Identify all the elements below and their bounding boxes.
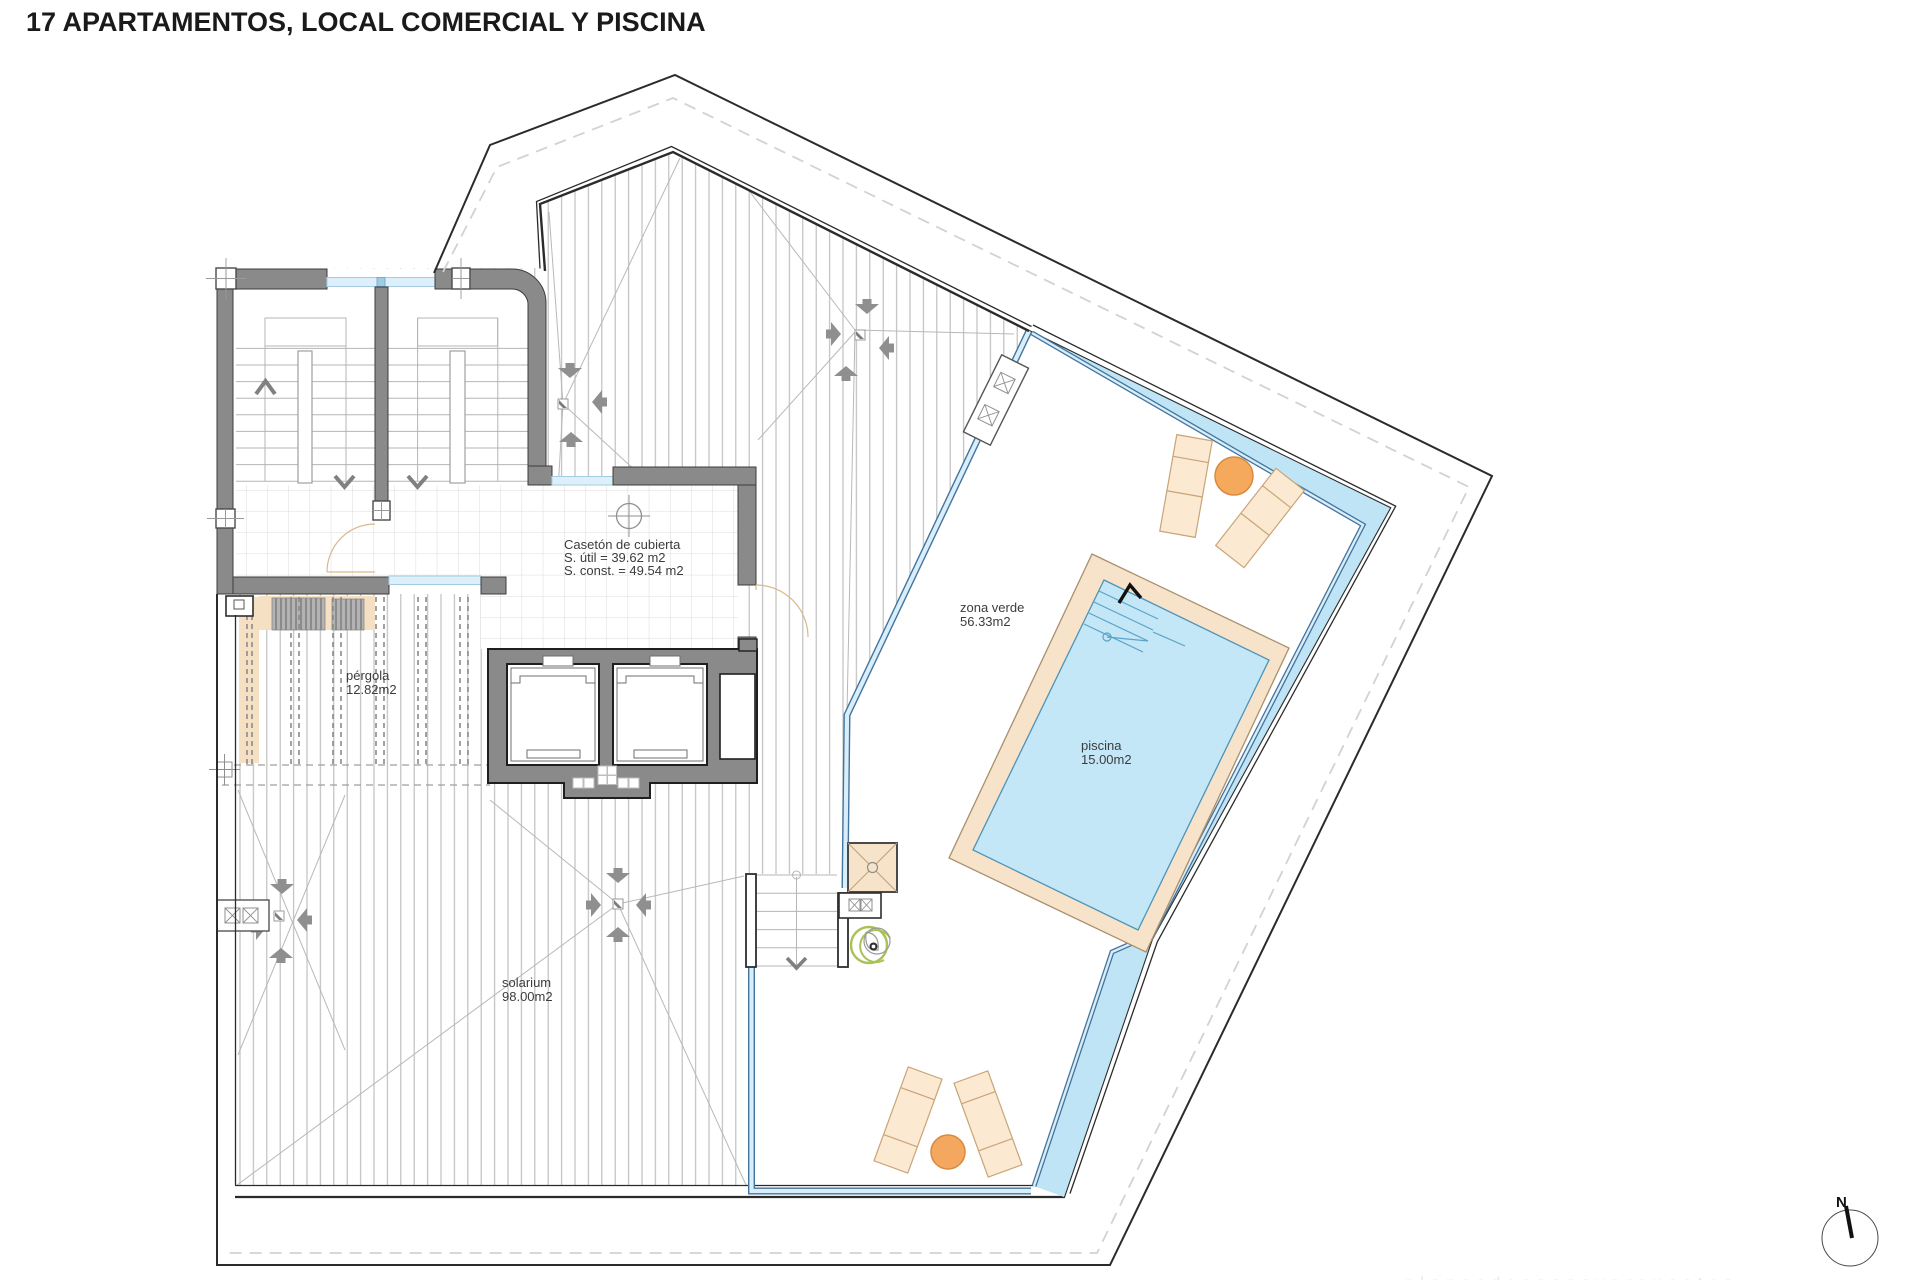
svg-text:S. const. = 49.54 m2: S. const. = 49.54 m2 [564, 563, 684, 578]
svg-text:solarium: solarium [502, 975, 551, 990]
svg-text:12.82m2: 12.82m2 [346, 682, 397, 697]
svg-text:17 APARTAMENTOS, LOCAL COMERCI: 17 APARTAMENTOS, LOCAL COMERCIAL Y PISCI… [26, 7, 706, 37]
svg-text:56.33m2: 56.33m2 [960, 614, 1011, 629]
svg-text:zona verde: zona verde [960, 600, 1024, 615]
svg-text:98.00m2: 98.00m2 [502, 989, 553, 1004]
svg-text:15.00m2: 15.00m2 [1081, 752, 1132, 767]
svg-text:planosdecasasyproyectos: planosdecasasyproyectos [1405, 1275, 1739, 1280]
svg-text:N: N [1836, 1194, 1847, 1211]
svg-text:piscina: piscina [1081, 738, 1122, 753]
svg-text:pérgola: pérgola [346, 668, 390, 683]
